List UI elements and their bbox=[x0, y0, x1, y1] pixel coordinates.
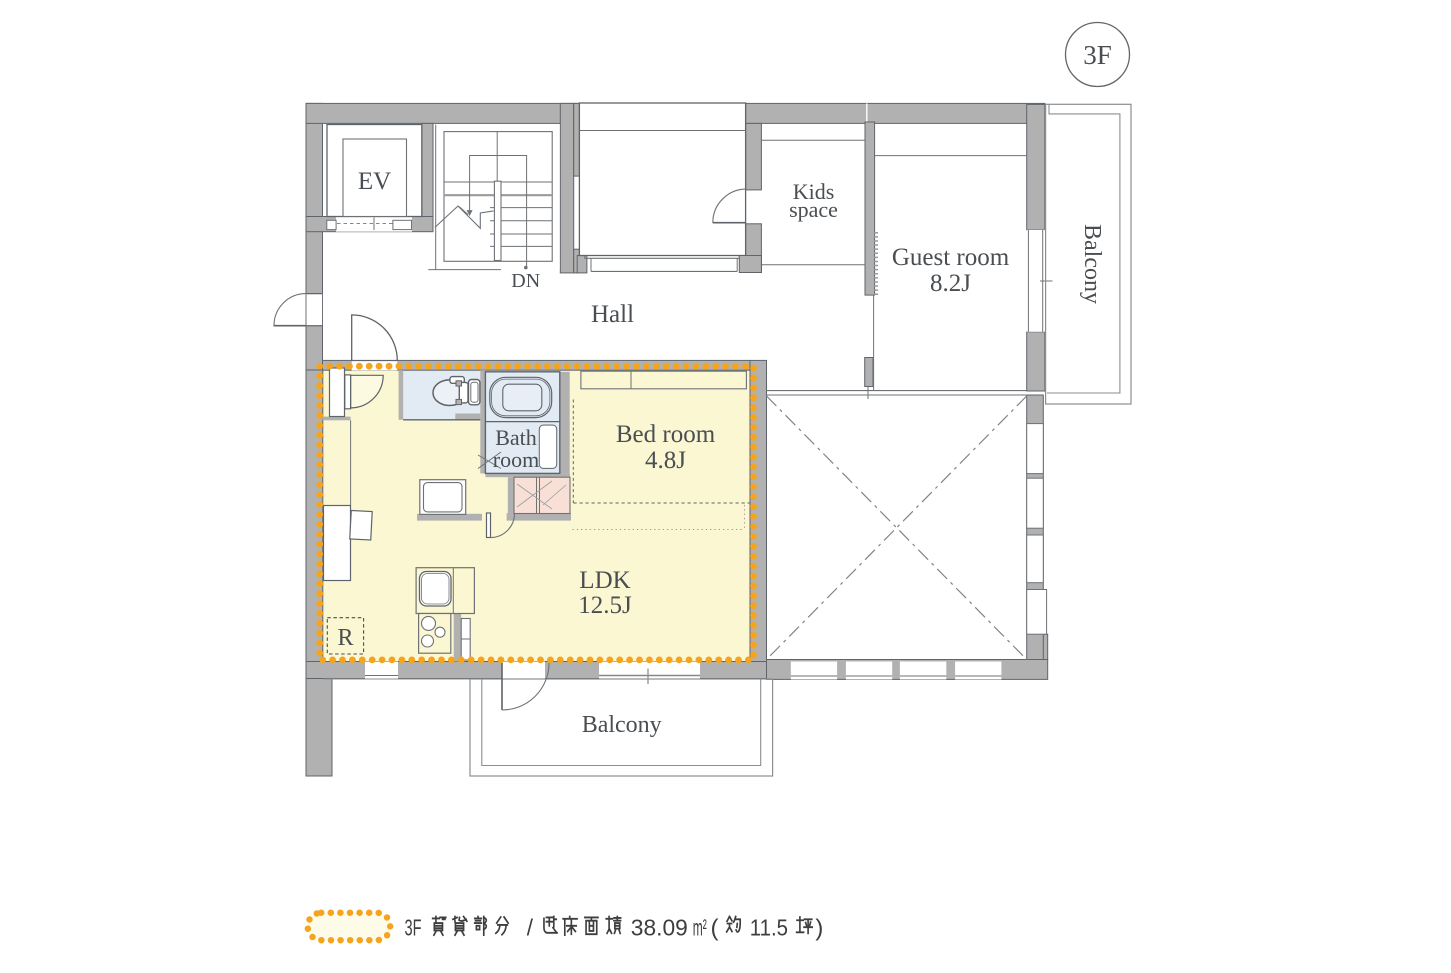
svg-text:11.5: 11.5 bbox=[750, 914, 788, 940]
svg-text:LDK: LDK bbox=[579, 567, 630, 594]
svg-text:12.5J: 12.5J bbox=[578, 592, 632, 619]
svg-text:4.8J: 4.8J bbox=[645, 447, 686, 474]
svg-text:/: / bbox=[527, 914, 534, 940]
svg-text:8.2J: 8.2J bbox=[930, 270, 971, 297]
svg-text:R: R bbox=[337, 625, 353, 651]
svg-text:room: room bbox=[493, 447, 539, 472]
svg-text:3F: 3F bbox=[405, 914, 422, 940]
svg-text:Guest room: Guest room bbox=[892, 244, 1010, 271]
svg-text:EV: EV bbox=[358, 168, 391, 195]
svg-text:Balcony: Balcony bbox=[582, 712, 662, 738]
svg-text:m²: m² bbox=[693, 914, 707, 940]
svg-text:(: ( bbox=[711, 914, 719, 940]
svg-text:DN: DN bbox=[511, 270, 540, 292]
svg-text:38.09: 38.09 bbox=[631, 914, 688, 940]
svg-text:3F: 3F bbox=[1083, 40, 1112, 70]
svg-text:Hall: Hall bbox=[591, 301, 634, 328]
svg-text:Bed room: Bed room bbox=[616, 421, 716, 448]
svg-text:space: space bbox=[789, 197, 838, 222]
svg-text:Balcony: Balcony bbox=[1079, 224, 1105, 304]
svg-text:): ) bbox=[815, 914, 823, 940]
